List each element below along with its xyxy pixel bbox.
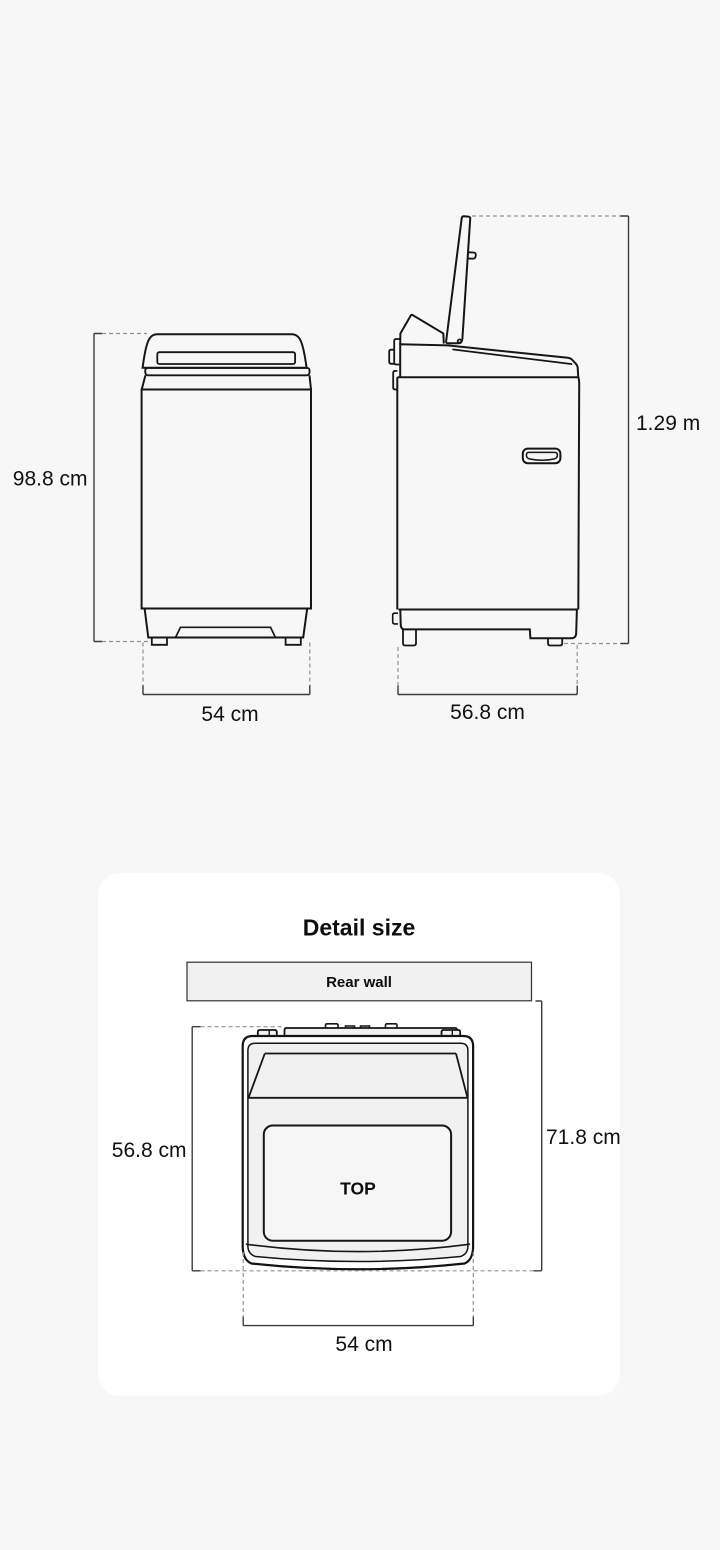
svg-text:98.8 cm: 98.8 cm — [13, 468, 88, 491]
svg-text:71.8 cm: 71.8 cm — [546, 1126, 621, 1149]
svg-text:54 cm: 54 cm — [335, 1333, 392, 1356]
svg-text:56.8 cm: 56.8 cm — [112, 1139, 187, 1162]
svg-text:56.8 cm: 56.8 cm — [450, 701, 525, 724]
svg-text:TOP: TOP — [340, 1179, 376, 1199]
svg-text:54 cm: 54 cm — [201, 703, 258, 726]
svg-text:Detail size: Detail size — [303, 915, 416, 941]
svg-text:1.29 m: 1.29 m — [636, 412, 700, 435]
svg-text:Rear wall: Rear wall — [326, 974, 392, 991]
